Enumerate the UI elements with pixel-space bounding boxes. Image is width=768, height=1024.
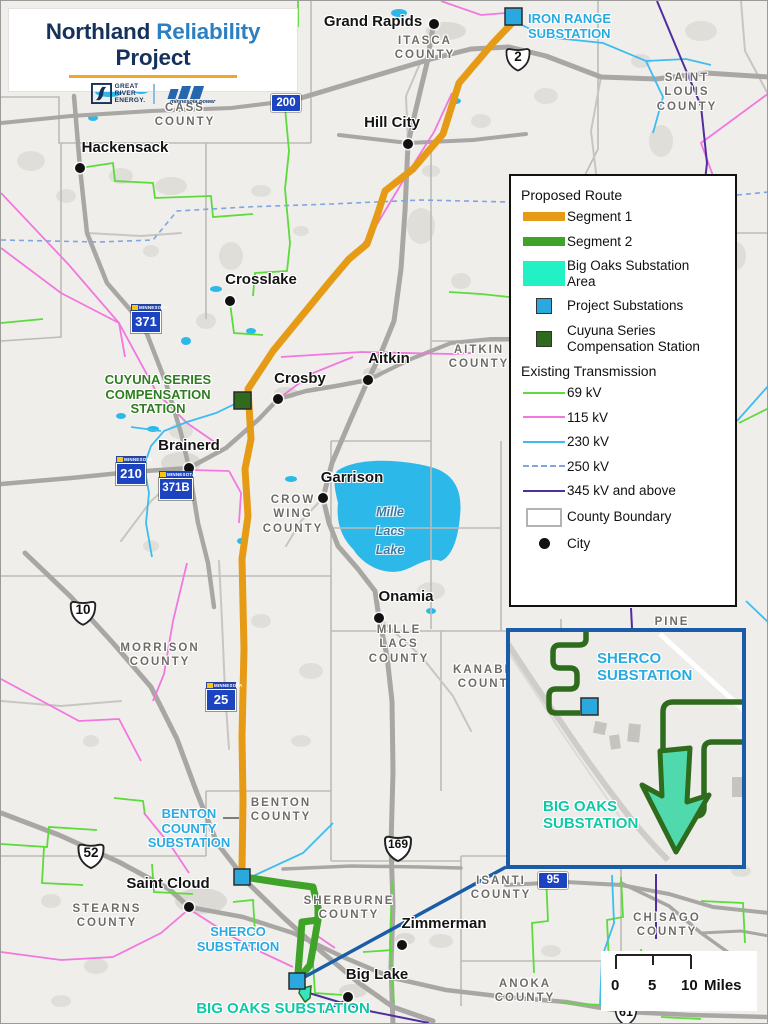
county-boundary-swatch <box>526 508 562 527</box>
legend-item-segment1: Segment 1 <box>521 209 727 225</box>
city-dot-hill-city <box>403 139 413 149</box>
scale-bar: 0 5 10 Miles <box>601 951 757 1011</box>
legend-item-project-substations: Project Substations <box>521 298 727 314</box>
label-benton-substation: BENTON COUNTY SUBSTATION <box>147 807 231 851</box>
mn-banner-wedge <box>132 305 138 310</box>
legend-header-existing-transmission: Existing Transmission <box>521 363 727 379</box>
city-dot-grand-rapids <box>429 19 439 29</box>
county-label-sherburne: SHERBURNE COUNTY <box>296 894 402 923</box>
logo-row: GREAT RIVER ENERGY. minnesota power <box>9 83 297 105</box>
city-label-hackensack: Hackensack <box>75 140 175 156</box>
city-label-grand-rapids: Grand Rapids <box>321 14 425 30</box>
us-route-52-shield: 52 <box>73 841 109 870</box>
scale-tick-10: 10 <box>681 977 698 994</box>
kv69-swatch <box>523 392 565 394</box>
legend-item-city: City <box>521 536 727 552</box>
label-mille-lacs-lake: Mille Lacs Lake <box>361 503 419 559</box>
mn-banner-text: MINNESOTA <box>214 683 242 688</box>
label-cuyuna-station: CUYUNA SERIES COMPENSATION STATION <box>93 373 223 417</box>
segment1-swatch <box>523 212 565 221</box>
mn-banner-wedge <box>160 472 166 477</box>
gre-text-line3: ENERGY. <box>115 97 146 104</box>
legend-header-proposed-route: Proposed Route <box>521 187 727 203</box>
gre-text-line2: RIVER <box>115 90 146 97</box>
legend-item-cuyuna-station: Cuyuna Series Compensation Station <box>521 323 727 354</box>
label-sherco-substation: SHERCO SUBSTATION <box>196 925 280 954</box>
legend-item-115kv: 115 kV <box>521 410 727 426</box>
kv250-swatch <box>523 465 565 467</box>
iron-range-substation-marker <box>505 8 522 25</box>
scale-unit: Miles <box>704 977 742 994</box>
us-route-2-shield: 2 <box>502 45 534 73</box>
inset-sherco-marker <box>581 698 598 715</box>
scale-bar-bracket <box>601 951 757 975</box>
city-label-garrison: Garrison <box>316 470 388 486</box>
county-label-morrison: MORRISON COUNTY <box>112 641 208 670</box>
mn-371-shield: MINNESOTA 371 <box>131 304 161 333</box>
great-river-energy-icon <box>91 83 112 104</box>
scale-tick-5: 5 <box>648 977 656 994</box>
mn-banner-wedge <box>117 457 123 462</box>
city-label-zimmerman: Zimmerman <box>397 916 491 932</box>
mn-210-shield: MINNESOTA 210 <box>116 456 146 485</box>
mn-371b-shield: MINNESOTA 371B <box>159 471 193 500</box>
mp-logo-bar <box>190 86 204 99</box>
gre-text-line1: GREAT <box>115 83 146 90</box>
title-card: Northland Reliability Project GREAT RIVE… <box>9 9 297 91</box>
county-label-itasca: ITASCA COUNTY <box>385 34 465 63</box>
kv230-swatch <box>523 441 565 443</box>
mn-banner-text: MINNESOTA <box>139 305 167 310</box>
legend-item-230kv: 230 kV <box>521 434 727 450</box>
city-label-hill-city: Hill City <box>357 115 427 131</box>
legend: Proposed Route Segment 1 Segment 2 Big O… <box>509 174 737 607</box>
city-dot-saint-cloud <box>184 902 194 912</box>
city-dot-hackensack <box>75 163 85 173</box>
project-substation-swatch <box>536 298 552 314</box>
county-label-aitkin: AITKIN COUNTY <box>439 343 519 372</box>
city-label-brainerd: Brainerd <box>151 438 227 454</box>
mn-banner-wedge <box>207 683 213 688</box>
cuyuna-station-marker <box>234 392 251 409</box>
city-label-onamia: Onamia <box>373 589 439 605</box>
mn-25-shield: MINNESOTA 25 <box>206 682 236 711</box>
us-route-169-shield: 169 <box>380 833 416 863</box>
legend-item-big-oaks-area: Big Oaks Substation Area <box>521 258 727 289</box>
county-label-saint-louis: SAINT LOUIS COUNTY <box>652 71 722 114</box>
benton-substation-marker <box>234 869 250 885</box>
city-label-saint-cloud: Saint Cloud <box>119 876 217 892</box>
city-dot-garrison <box>318 493 328 503</box>
city-label-crosby: Crosby <box>269 371 331 387</box>
label-big-oaks-substation: BIG OAKS SUBSTATION <box>183 1001 383 1018</box>
big-oaks-area-swatch <box>523 261 565 286</box>
county-label-benton: BENTON COUNTY <box>243 796 319 825</box>
mn-95-shield: 95 <box>538 872 568 889</box>
legend-item-250kv: 250 kV <box>521 459 727 475</box>
county-label-mille-lacs: MILLE LACS COUNTY <box>368 623 430 666</box>
inset-label-sherco: SHERCO SUBSTATION <box>597 650 712 685</box>
mn-banner-text: MINNESOTA <box>167 472 195 477</box>
city-dot-zimmerman <box>397 940 407 950</box>
scale-tick-0: 0 <box>611 977 619 994</box>
city-label-big-lake: Big Lake <box>341 967 413 983</box>
county-label-stearns: STEARNS COUNTY <box>67 902 147 931</box>
big-oaks-substation-marker <box>289 973 305 989</box>
county-label-isanti: ISANTI COUNTY <box>467 874 535 903</box>
legend-item-segment2: Segment 2 <box>521 234 727 250</box>
mp-logo-text: minnesota power <box>170 99 215 105</box>
label-iron-range-substation: IRON RANGE SUBSTATION <box>528 12 633 41</box>
inset-label-big-oaks: BIG OAKS SUBSTATION <box>543 798 661 833</box>
city-label-aitkin: Aitkin <box>361 351 417 367</box>
city-dot-crosslake <box>225 296 235 306</box>
legend-item-69kv: 69 kV <box>521 385 727 401</box>
city-label-crosslake: Crosslake <box>221 272 301 288</box>
mn-banner-text: MINNESOTA <box>124 457 152 462</box>
city-dot-onamia <box>374 613 384 623</box>
map-page: ITASCA COUNTY SAINT LOUIS COUNTY CASS CO… <box>0 0 768 1024</box>
us-route-10-shield: 10 <box>66 598 100 627</box>
kv345-swatch <box>523 490 565 492</box>
logo-divider <box>153 84 155 104</box>
county-label-crow-wing: CROW WING COUNTY <box>262 493 324 536</box>
county-label-chisago: CHISAGO COUNTY <box>627 911 707 940</box>
title-underline <box>69 75 237 78</box>
cuyuna-station-swatch <box>536 331 552 347</box>
page-title: Northland Reliability Project <box>9 19 297 71</box>
county-label-cass: CASS COUNTY <box>147 101 223 130</box>
city-dot-aitkin <box>363 375 373 385</box>
city-swatch <box>539 538 550 549</box>
inset-map: SHERCO SUBSTATION BIG OAKS SUBSTATION <box>506 628 746 869</box>
county-label-anoka: ANOKA COUNTY <box>492 977 558 1006</box>
kv115-swatch <box>523 416 565 418</box>
title-word-1: Northland <box>46 19 150 44</box>
segment2-swatch <box>523 237 565 246</box>
city-dot-crosby <box>273 394 283 404</box>
title-word-2: Reliability <box>156 19 260 44</box>
minnesota-power-logo: minnesota power <box>163 83 215 105</box>
legend-item-345kv: 345 kV and above <box>521 483 727 499</box>
great-river-energy-logo: GREAT RIVER ENERGY. <box>91 83 146 105</box>
title-word-3: Project <box>116 45 191 70</box>
legend-item-county-boundary: County Boundary <box>521 508 727 527</box>
